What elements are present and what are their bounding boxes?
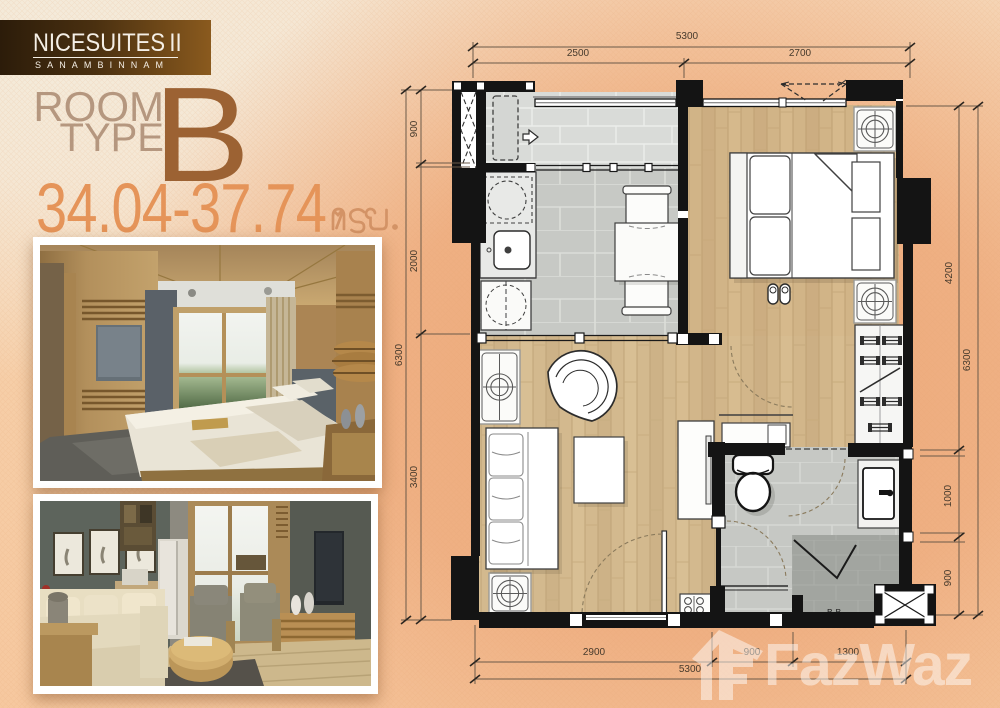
svg-text:2000: 2000 — [409, 249, 420, 272]
svg-text:6300: 6300 — [962, 348, 973, 371]
svg-text:6300: 6300 — [394, 343, 405, 366]
svg-text:2900: 2900 — [583, 647, 606, 658]
svg-text:5300: 5300 — [679, 664, 702, 675]
svg-text:900: 900 — [943, 569, 954, 586]
svg-text:3400: 3400 — [409, 465, 420, 488]
svg-text:900: 900 — [409, 120, 420, 137]
svg-text:4200: 4200 — [944, 261, 955, 284]
svg-text:2500: 2500 — [567, 48, 590, 59]
svg-text:1000: 1000 — [943, 484, 954, 507]
svg-text:5300: 5300 — [676, 31, 699, 42]
svg-text:FazWaz: FazWaz — [764, 632, 972, 698]
svg-text:2700: 2700 — [789, 48, 812, 59]
